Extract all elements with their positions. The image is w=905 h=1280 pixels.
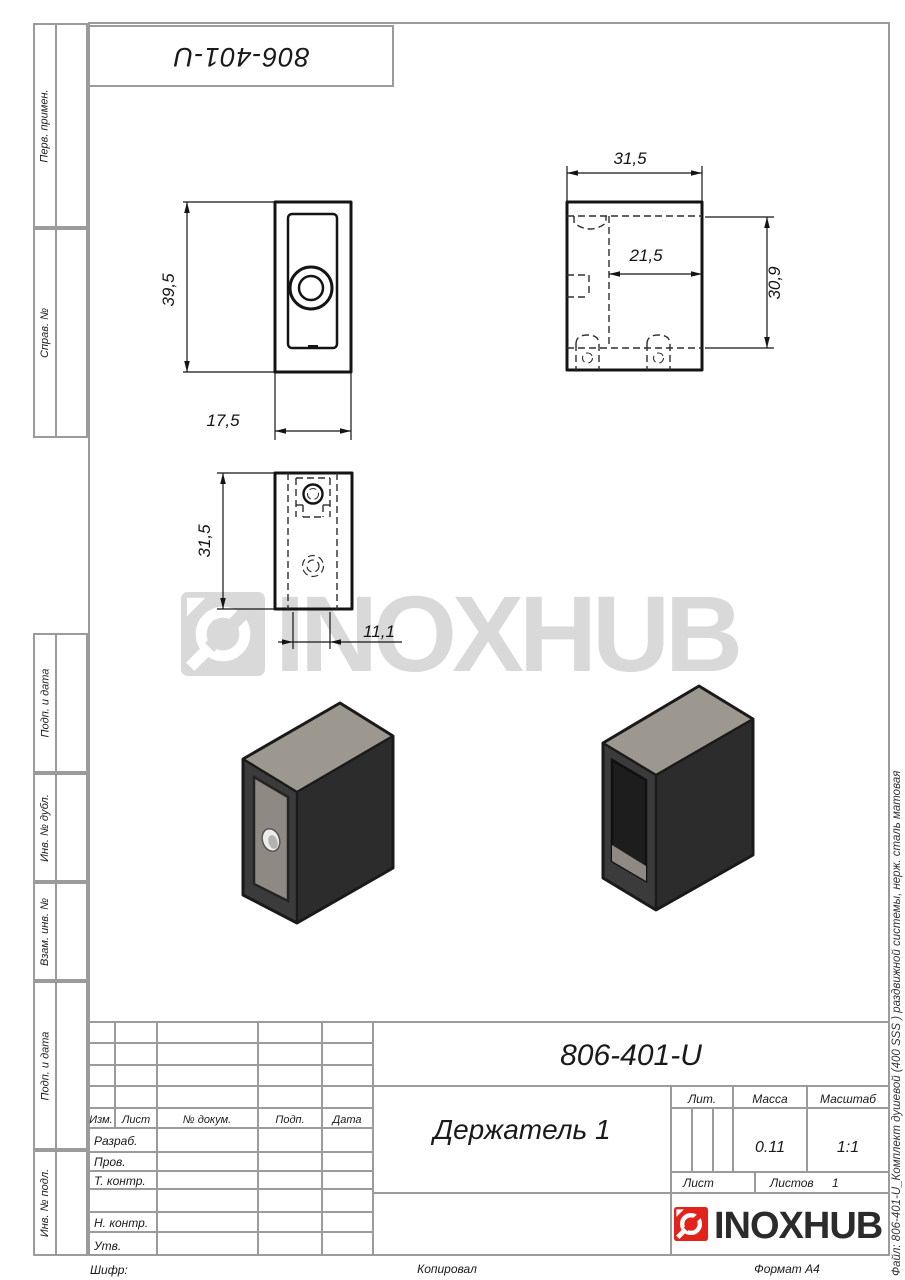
sheets-label: Листов <box>769 1176 814 1190</box>
iso-view-back <box>603 686 753 910</box>
top-view-dimensions: 31,5 11,1 <box>195 473 402 649</box>
sidebar-label: Подп. и дата <box>39 1031 51 1100</box>
sidebar-label: Подп. и дата <box>39 669 51 738</box>
drawing-views: 39,5 17,5 <box>90 140 890 940</box>
sidebar-label-col: Подп. и дата <box>35 983 57 1148</box>
title-designation: 806-401-U <box>560 1039 702 1072</box>
sidebar-blank-col <box>57 25 86 226</box>
inoxhub-logo-icon <box>674 1207 708 1241</box>
sidebar-cell-podp-data-1: Подп. и дата <box>33 633 88 773</box>
sidebar-label: Инв. № подл. <box>39 1169 51 1237</box>
staff-utv: Утв. <box>93 1239 121 1253</box>
sidebar-cell-vzam-inv: Взам. инв. № <box>33 882 88 981</box>
front-view-dimensions: 39,5 17,5 <box>159 202 351 440</box>
front-view <box>275 202 351 372</box>
scale-value: 1:1 <box>837 1139 859 1156</box>
drawing-sheet: Перв. примен. Справ. № Подп. и дата Инв.… <box>0 0 905 1280</box>
sidebar-label: Взам. инв. № <box>39 897 51 965</box>
sidebar-label-col: Справ. № <box>35 230 57 436</box>
file-note: Файл: 806-401-U_Комплект душевой (400 SS… <box>891 731 903 1276</box>
sidebar-blank-col <box>57 635 86 771</box>
lit-header: Лит. <box>687 1092 716 1106</box>
date-header: Дата <box>330 1114 361 1126</box>
list-header: Лист <box>121 1114 150 1126</box>
top-view <box>275 473 352 609</box>
staff-tkontr: Т. контр. <box>94 1174 146 1188</box>
sidebar-cell-inv-dubl: Инв. № дубл. <box>33 773 88 882</box>
part-name: Держатель 1 <box>430 1114 610 1145</box>
sidebar-label: Справ. № <box>39 308 51 358</box>
iso-view-front <box>243 703 393 923</box>
side-view <box>567 202 702 370</box>
brand-logo-block: INOXHUB <box>674 1205 882 1247</box>
sidebar-cell-sprav-no: Справ. № <box>33 228 88 438</box>
sidebar-blank-col <box>57 884 86 979</box>
sidebar-label-col: Инв. № дубл. <box>35 775 57 880</box>
stamp-designation: 806-401-U <box>173 41 310 72</box>
dim-top-width: 11,1 <box>363 622 395 641</box>
sheets-count: 1 <box>832 1176 839 1190</box>
side-view-dimensions: 31,5 21,5 30,9 <box>567 149 784 348</box>
sidebar-label-col: Подп. и дата <box>35 635 57 771</box>
dim-top-length: 31,5 <box>195 524 214 558</box>
sidebar-label-col: Перв. примен. <box>35 25 57 226</box>
sidebar-blank-col <box>57 230 86 436</box>
dim-side-inner-width: 21,5 <box>628 246 663 265</box>
sheet-label: Лист <box>682 1176 714 1190</box>
staff-prov: Пров. <box>94 1155 126 1169</box>
cipher-label: Шифр: <box>90 1263 128 1277</box>
sidebar-label: Перв. примен. <box>39 89 51 162</box>
mass-value: 0.11 <box>755 1139 785 1156</box>
sidebar-cell-perv-primen: Перв. примен. <box>33 23 88 228</box>
copied-label: Копировал <box>417 1262 477 1276</box>
sign-header: Подп. <box>275 1114 304 1126</box>
doc-header: № докум. <box>183 1114 231 1126</box>
staff-razrab: Разраб. <box>94 1134 137 1148</box>
brand-name: INOXHUB <box>714 1205 882 1247</box>
dim-side-width: 31,5 <box>613 149 647 168</box>
stamp-box: 806-401-U <box>88 25 394 87</box>
dim-front-width: 17,5 <box>206 411 240 430</box>
sidebar-blank-col <box>57 775 86 880</box>
mass-header: Масса <box>752 1092 788 1106</box>
sidebar-label-col: Инв. № подл. <box>35 1152 57 1254</box>
dim-front-height: 39,5 <box>159 273 178 307</box>
sidebar-label: Инв. № дубл. <box>39 794 51 862</box>
scale-header: Масштаб <box>820 1092 877 1106</box>
format-label: Формат А4 <box>754 1262 820 1276</box>
staff-nkontr: Н. контр. <box>94 1216 148 1230</box>
dim-side-height: 30,9 <box>765 266 784 300</box>
sidebar-label-col: Взам. инв. № <box>35 884 57 979</box>
title-block: 806-401-U Держатель 1 Лит. Масса Масштаб… <box>80 1015 905 1280</box>
izm-header: Изм. <box>89 1114 112 1126</box>
